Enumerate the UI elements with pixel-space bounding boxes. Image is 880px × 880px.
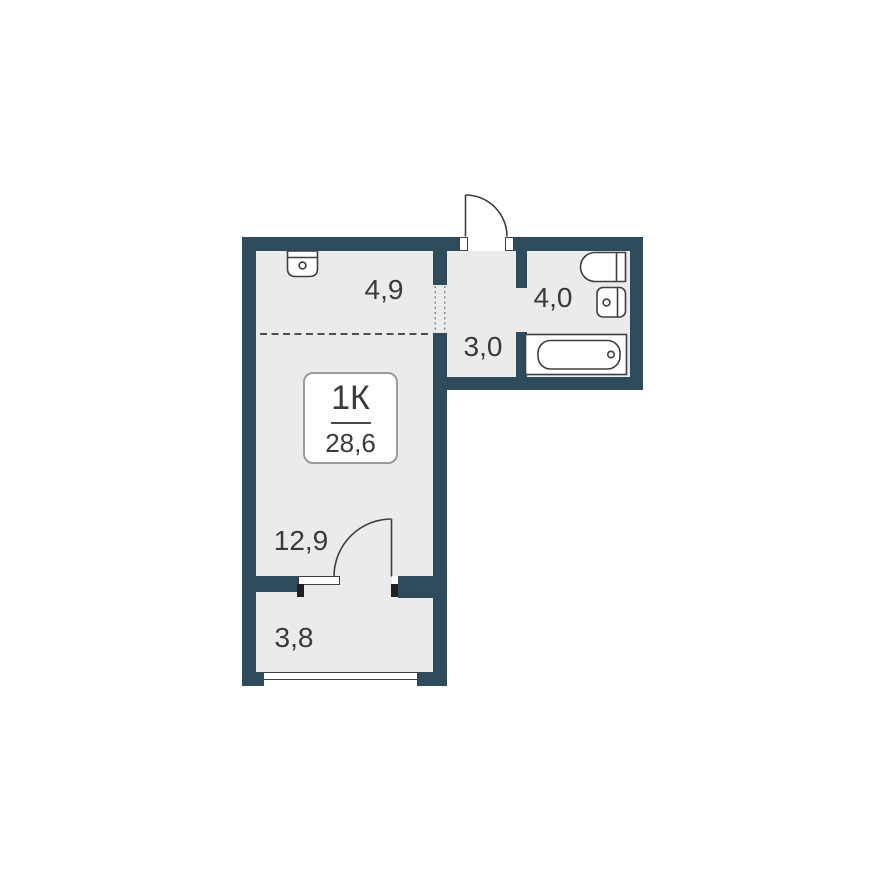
balcony-door-swing-arc [334, 519, 392, 577]
entrance-door-swing-arc [466, 195, 508, 237]
unit-area-badge: 1К 28,6 [303, 372, 398, 464]
unit-type-label: 1К [331, 381, 370, 415]
total-area-label: 28,6 [325, 430, 376, 456]
kitchen-zone-area-label: 4,9 [365, 276, 404, 304]
toilet [581, 253, 626, 282]
kitchen-sink [288, 251, 318, 277]
washbasin [597, 288, 626, 318]
hallway-area-label: 3,0 [464, 333, 503, 361]
balcony-area-label: 3,8 [275, 624, 314, 652]
plan-linework [0, 0, 880, 880]
badge-divider-line [331, 422, 371, 424]
bathtub [526, 335, 627, 375]
living-zone-area-label: 12,9 [274, 527, 329, 555]
bathroom-area-label: 4,0 [534, 284, 573, 312]
floor-plan: 4,9 3,0 4,0 12,9 3,8 1К 28,6 [0, 0, 880, 880]
